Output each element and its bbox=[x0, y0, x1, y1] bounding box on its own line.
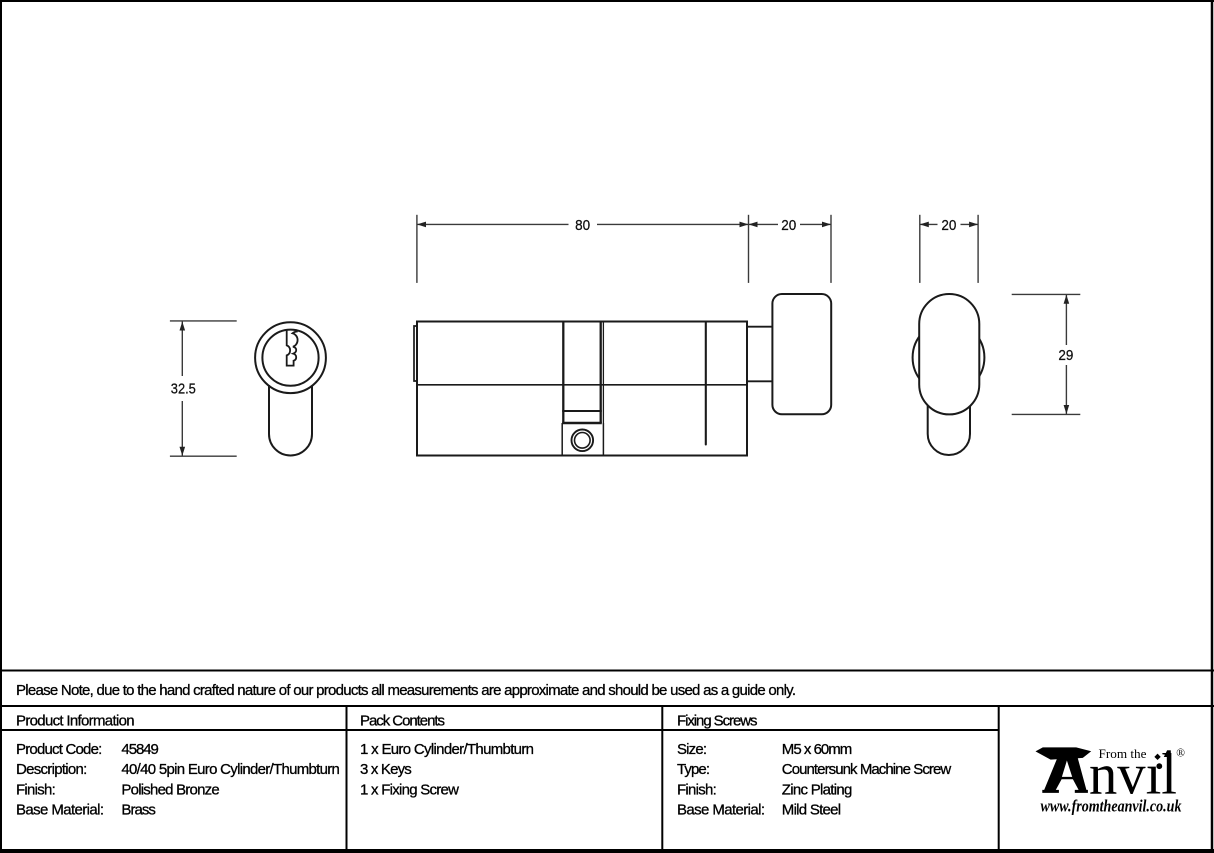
svg-text:3 x Keys: 3 x Keys bbox=[360, 761, 412, 778]
svg-text:45849: 45849 bbox=[121, 741, 158, 758]
svg-text:29: 29 bbox=[1058, 347, 1073, 364]
svg-text:Zinc Plating: Zinc Plating bbox=[782, 781, 853, 798]
svg-text:Finish:: Finish: bbox=[677, 781, 717, 798]
svg-text:Brass: Brass bbox=[121, 801, 155, 818]
svg-text:Pack Contents: Pack Contents bbox=[360, 712, 445, 729]
svg-text:1 x Fixing Screw: 1 x Fixing Screw bbox=[360, 781, 459, 798]
svg-text:20: 20 bbox=[781, 217, 796, 234]
svg-text:Finish:: Finish: bbox=[16, 781, 56, 798]
svg-text:80: 80 bbox=[575, 217, 590, 234]
svg-text:Countersunk Machine Screw: Countersunk Machine Screw bbox=[782, 761, 952, 778]
svg-text:1 x Euro Cylinder/Thumbturn: 1 x Euro Cylinder/Thumbturn bbox=[360, 741, 534, 758]
svg-text:20: 20 bbox=[941, 217, 956, 234]
svg-text:Fixing Screws: Fixing Screws bbox=[677, 712, 758, 729]
svg-text:Type:: Type: bbox=[677, 761, 710, 778]
svg-text:32.5: 32.5 bbox=[171, 380, 196, 397]
svg-text:Size:: Size: bbox=[677, 741, 707, 758]
svg-text:Base Material:: Base Material: bbox=[677, 801, 765, 818]
svg-text:Description:: Description: bbox=[16, 761, 87, 778]
svg-text:M5 x 60mm: M5 x 60mm bbox=[782, 741, 853, 758]
svg-text:40/40 5pin Euro Cylinder/Thumb: 40/40 5pin Euro Cylinder/Thumbturn bbox=[121, 761, 340, 778]
svg-text:Product Information: Product Information bbox=[16, 712, 135, 729]
svg-text:Product Code:: Product Code: bbox=[16, 741, 102, 758]
svg-text:Polished Bronze: Polished Bronze bbox=[121, 781, 219, 798]
svg-text:Please Note, due to the hand c: Please Note, due to the hand crafted nat… bbox=[16, 682, 796, 699]
svg-text:www.fromtheanvil.co.uk: www.fromtheanvil.co.uk bbox=[1041, 797, 1182, 816]
svg-text:Base Material:: Base Material: bbox=[16, 801, 104, 818]
svg-text:Mild Steel: Mild Steel bbox=[782, 801, 841, 818]
svg-text:®: ® bbox=[1176, 747, 1185, 759]
